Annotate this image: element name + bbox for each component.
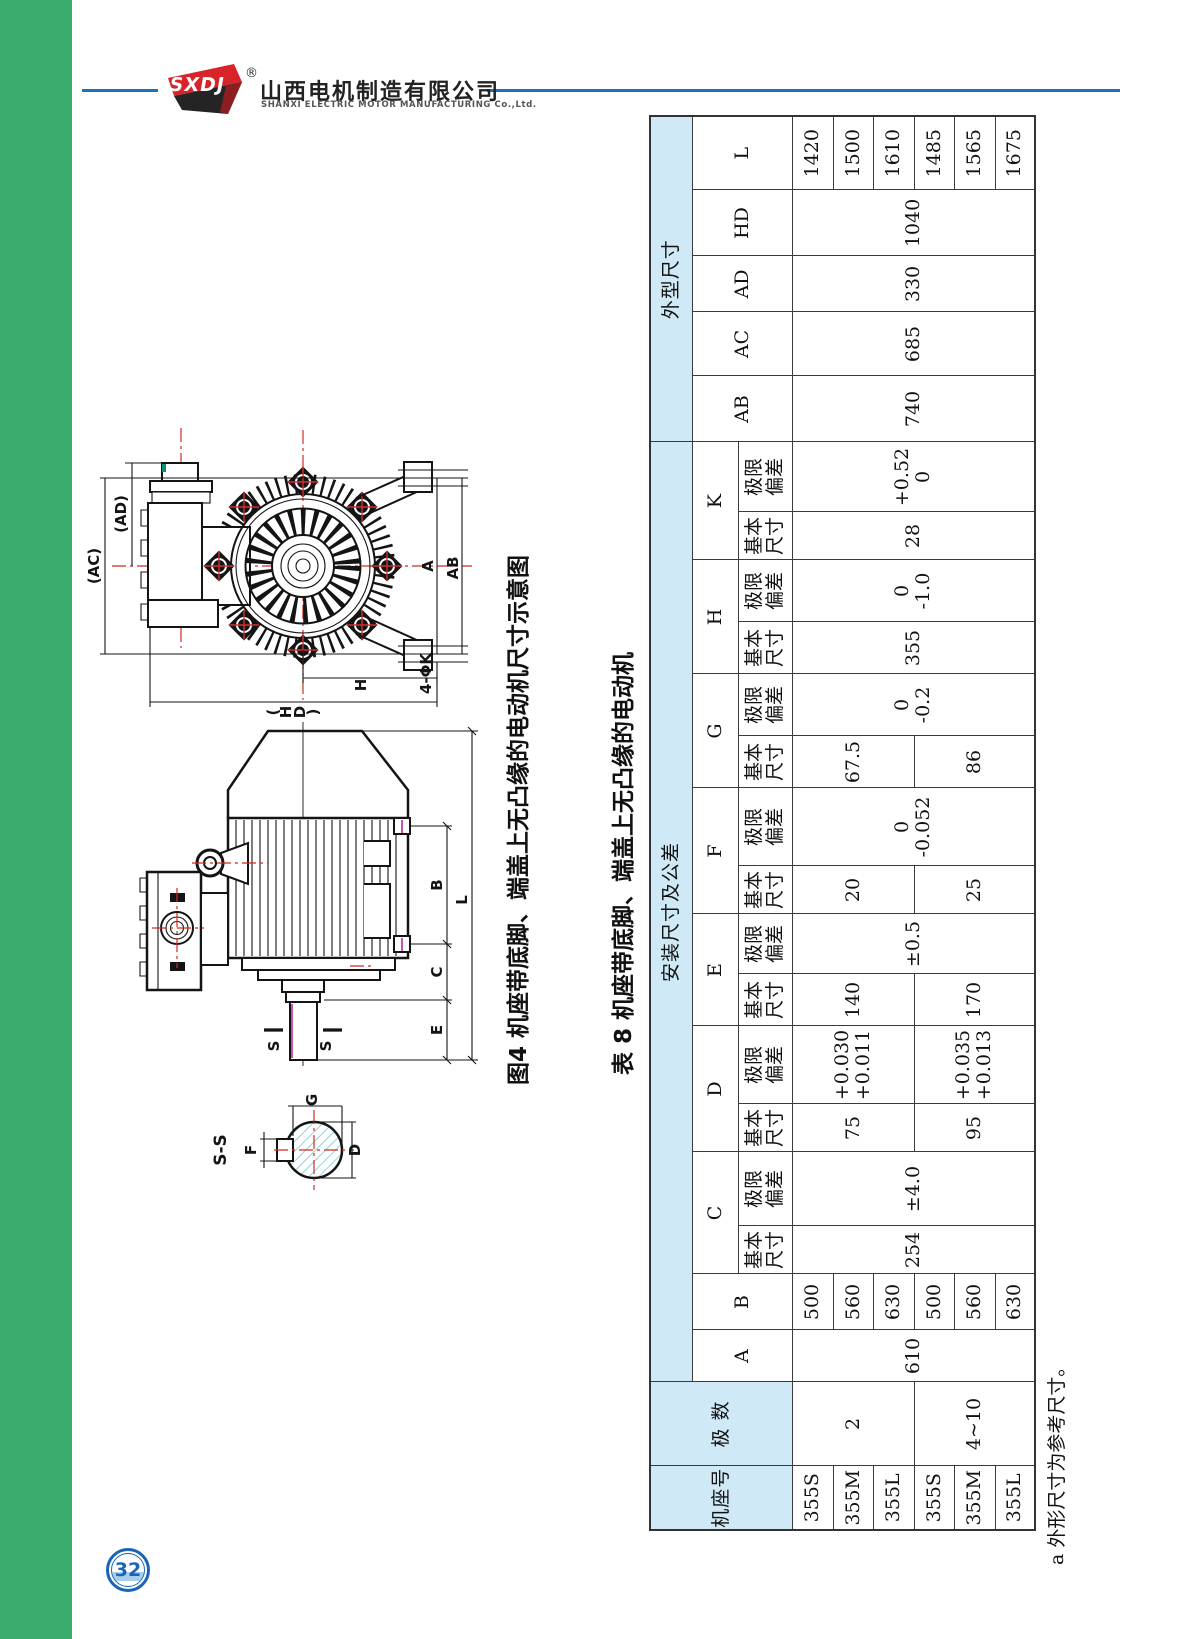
foot-pad-top (404, 462, 432, 492)
K-dev-cell: +0.520 (792, 442, 1035, 512)
page-number-inner: 32 (111, 1553, 145, 1587)
AD-cell: 330 (792, 256, 1035, 312)
teal-mark (162, 464, 166, 472)
side-rib (364, 884, 390, 938)
L-cell: 1420 (792, 116, 833, 190)
poles-cell: 4~10 (914, 1382, 1035, 1466)
H-basic-cell: 355 (792, 622, 1035, 674)
footnote-wrap: a 外形尺寸为参考尺寸。 (1042, 1330, 1200, 1357)
C-basic-cell: 254 (792, 1226, 1035, 1274)
col-G: G (692, 674, 738, 788)
page-number: 32 (115, 1559, 141, 1581)
sub-basic: 基本尺寸 (738, 512, 792, 560)
AC-cell: 685 (792, 312, 1035, 376)
col-F: F (692, 788, 738, 914)
table-caption: 表 8 机座带底脚、端盖上无凸缘的电动机 (604, 580, 638, 1075)
col-H: H (692, 560, 738, 674)
dim-label-e: E (428, 1025, 446, 1035)
col-L: L (692, 116, 792, 190)
col-AB: AB (692, 376, 792, 442)
dim-label-ac: (AC) (85, 548, 103, 584)
sub-dev: 极限偏差 (738, 788, 792, 866)
L-cell: 1485 (914, 116, 954, 190)
E-basic-cell: 140 (792, 974, 914, 1026)
endshield (242, 958, 395, 970)
shaft-section-view: S-S G D F (211, 1094, 364, 1190)
B-cell: 500 (792, 1274, 833, 1330)
terminal-box-body (148, 503, 202, 600)
dim-label-ad: (AD) (112, 495, 130, 533)
terminal-box-plate (150, 481, 212, 492)
poles-cell: 2 (792, 1382, 914, 1466)
D-dev-cell: +0.035+0.013 (914, 1026, 1035, 1104)
group-install: 安装尺寸及公差 (650, 442, 692, 1382)
section-title: S-S (211, 1134, 231, 1166)
col-C: C (692, 1152, 738, 1274)
K-basic-cell: 28 (792, 512, 1035, 560)
dim-label-c: C (428, 966, 446, 977)
section-mark-s: S (317, 1041, 335, 1052)
motor-end-view: (AC) (AD) A AB H ( H D ) 4-ΦK (85, 428, 472, 718)
H-dev-cell: 0-1.0 (792, 560, 1035, 622)
F-basic-cell: 20 (792, 866, 914, 914)
dim-label-a: A (419, 560, 437, 572)
terminal-box-tabs (141, 510, 148, 620)
HD-cell: 1040 (792, 190, 1035, 256)
F-dev-cell: 0-0.052 (792, 788, 1035, 866)
E-dev-cell: ±0.5 (792, 914, 1035, 974)
catalog-page: SXDJ ® 山西电机制造有限公司 SHANXI ELECTRIC MOTOR … (0, 0, 1200, 1639)
dim-label-b: B (428, 879, 446, 890)
C-dev-cell: ±4.0 (792, 1152, 1035, 1226)
G-dev-cell: 0-0.2 (792, 674, 1035, 736)
dim-label-hd: ( H D ) (264, 706, 322, 719)
section-mark-s: S (265, 1041, 283, 1052)
bearing-boss (282, 980, 324, 992)
dimension-table: 机座号 极 数 安装尺寸及公差 外型尺寸 A B C D E F G H K A… (649, 115, 1036, 1531)
frame-cell: 355M (954, 1466, 995, 1530)
D-basic-cell: 95 (914, 1104, 1035, 1152)
dim-label-f: F (242, 1145, 260, 1155)
sub-basic: 基本尺寸 (738, 622, 792, 674)
motor-side-view: S S B C E L (140, 722, 478, 1066)
frame-cell: 355S (914, 1466, 954, 1530)
shaft (290, 1002, 317, 1060)
B-cell: 630 (995, 1274, 1035, 1330)
sub-dev: 极限偏差 (738, 442, 792, 512)
L-cell: 1675 (995, 116, 1035, 190)
header-frame: 机座号 (650, 1466, 792, 1530)
terminal-neck-side (201, 893, 228, 965)
page-number-badge: 32 (106, 1548, 150, 1592)
sub-basic: 基本尺寸 (738, 974, 792, 1026)
G-basic-cell: 67.5 (792, 736, 914, 788)
dim-label-g: G (303, 1094, 321, 1106)
F-basic-cell: 25 (914, 866, 1035, 914)
endshield-step (258, 970, 380, 980)
sub-basic: 基本尺寸 (738, 1104, 792, 1152)
sub-dev: 极限偏差 (738, 674, 792, 736)
group-outline: 外型尺寸 (650, 116, 692, 442)
dim-label-ab: AB (444, 556, 462, 579)
sub-basic: 基本尺寸 (738, 866, 792, 914)
frame-cell: 355M (833, 1466, 873, 1530)
D-basic-cell: 75 (792, 1104, 914, 1152)
sub-dev: 极限偏差 (738, 914, 792, 974)
frame-cell: 355L (873, 1466, 914, 1530)
col-A: A (692, 1330, 792, 1382)
dim-label-l: L (453, 895, 471, 905)
L-cell: 1610 (873, 116, 914, 190)
E-basic-cell: 170 (914, 974, 1035, 1026)
L-cell: 1500 (833, 116, 873, 190)
dim-label-d: D (346, 1144, 364, 1156)
B-cell: 630 (873, 1274, 914, 1330)
shaft-shoulder (286, 992, 320, 1002)
col-E: E (692, 914, 738, 1026)
col-AC: AC (692, 312, 792, 376)
col-B: B (692, 1274, 792, 1330)
sub-dev: 极限偏差 (738, 1152, 792, 1226)
frame-cell: 355L (995, 1466, 1035, 1530)
table-footnote: a 外形尺寸为参考尺寸。 (1042, 1330, 1069, 1565)
dim-label-4phik: 4-ΦK (417, 652, 435, 694)
AB-cell: 740 (792, 376, 1035, 442)
L-cell: 1565 (954, 116, 995, 190)
D-dev-cell: +0.030+0.011 (792, 1026, 914, 1104)
col-K: K (692, 442, 738, 560)
terminal-box-plate (152, 492, 210, 503)
A-cell: 610 (792, 1330, 1035, 1382)
sub-basic: 基本尺寸 (738, 736, 792, 788)
figure-caption: 图4 机座带底脚、端盖上无凸缘的电动机尺寸示意图 (499, 540, 533, 1085)
B-cell: 560 (954, 1274, 995, 1330)
table-row: 355S 2 610 500 254 ±4.0 75 +0.030+0.011 … (792, 116, 833, 1530)
frame-cell: 355S (792, 1466, 833, 1530)
dim-label-h: H (352, 679, 370, 692)
sub-dev: 极限偏差 (738, 1026, 792, 1104)
svg-text:): ) (304, 709, 322, 716)
terminal-box-base (148, 600, 218, 627)
side-rib (364, 841, 390, 866)
col-HD: HD (692, 190, 792, 256)
sub-basic: 基本尺寸 (738, 1226, 792, 1274)
B-cell: 560 (833, 1274, 873, 1330)
dimension-table-wrap: 机座号 极 数 安装尺寸及公差 外型尺寸 A B C D E F G H K A… (649, 117, 1200, 504)
header-poles: 极 数 (650, 1382, 792, 1466)
B-cell: 500 (914, 1274, 954, 1330)
bolt-pad (371, 550, 402, 581)
sub-dev: 极限偏差 (738, 560, 792, 622)
col-AD: AD (692, 256, 792, 312)
col-D: D (692, 1026, 738, 1152)
G-basic-cell: 86 (914, 736, 1035, 788)
